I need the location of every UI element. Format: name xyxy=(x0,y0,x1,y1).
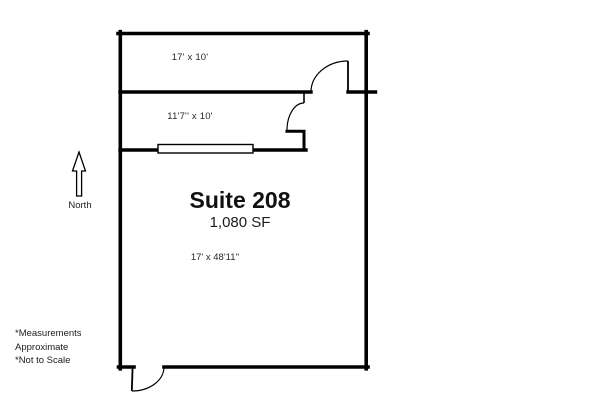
door-swing-arc-middle xyxy=(287,103,304,130)
interior-wall-lower xyxy=(120,145,306,154)
door-swing-arc-top xyxy=(311,61,348,92)
window xyxy=(158,145,253,154)
footnotes: *Measurements Approximate *Not to Scale xyxy=(15,327,82,368)
door-top-right xyxy=(311,61,348,92)
room-label-middle: 11'7'' x 10' xyxy=(120,111,260,122)
suite-area: 1,080 SF xyxy=(120,214,360,231)
door-leaf-bottom xyxy=(132,367,133,391)
door-middle-room xyxy=(287,94,304,150)
door-leaf-middle-wall-stub xyxy=(287,131,304,149)
room-label-top: 17' x 10' xyxy=(120,52,260,63)
floorplan-canvas: 17' x 10' 11'7'' x 10' Suite 208 1,080 S… xyxy=(0,0,600,400)
door-swing-arc-bottom xyxy=(132,367,164,391)
door-bottom-left xyxy=(132,367,164,391)
footnote-line-2: Approximate xyxy=(15,341,82,355)
north-arrow-icon xyxy=(73,152,86,196)
footnote-line-1: *Measurements xyxy=(15,327,82,341)
north-label: North xyxy=(50,200,110,211)
suite-title: Suite 208 xyxy=(120,187,360,214)
footnote-line-3: *Not to Scale xyxy=(15,354,82,368)
suite-dimensions: 17' x 48'11'' xyxy=(120,252,310,263)
